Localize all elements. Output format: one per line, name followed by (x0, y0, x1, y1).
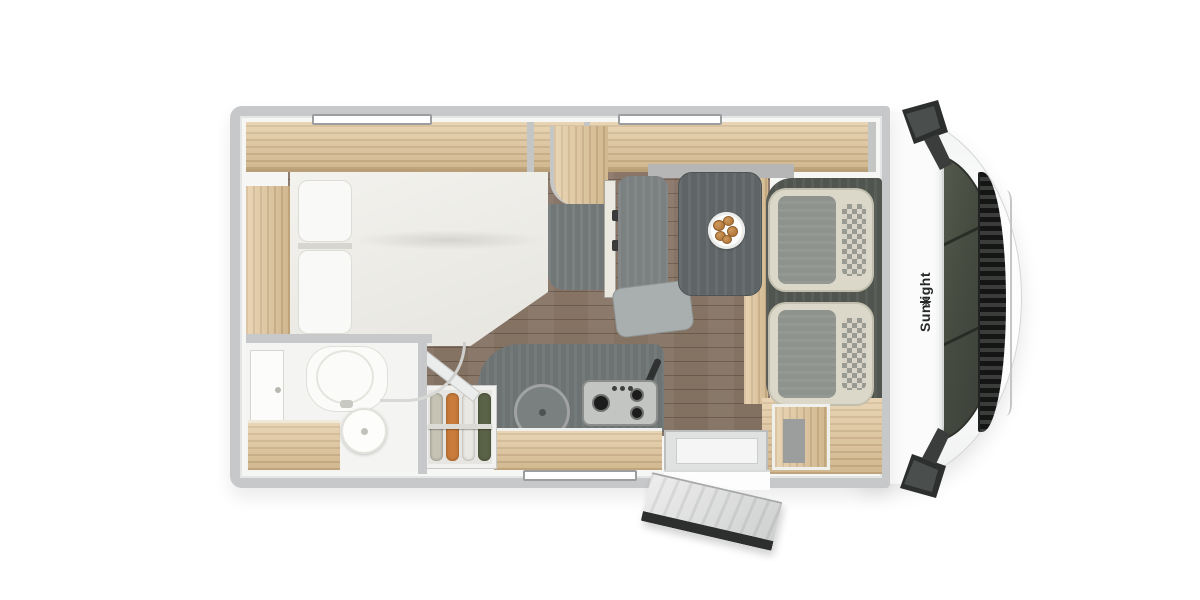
cab-seat-driver (768, 302, 874, 406)
entry-step (676, 438, 758, 464)
bathroom-cabinet-door (250, 350, 284, 428)
seat-cushion (778, 310, 836, 398)
seat-headrest-checkered (842, 318, 866, 390)
gas-hob (582, 380, 658, 426)
cab-seat-passenger (768, 188, 874, 292)
hanging-rail (428, 424, 492, 429)
cabinet-panel (783, 419, 805, 463)
motorhome-floorplan: Sunlight ✳ (0, 0, 1200, 600)
tv (604, 180, 616, 298)
toilet-seat (316, 350, 374, 404)
hob-knob-icon (620, 386, 625, 391)
seat-headrest-checkered (842, 204, 866, 276)
window-dinette (618, 114, 722, 125)
bathroom-vanity (248, 420, 340, 470)
burner-icon (592, 394, 610, 412)
side-mirror-top-icon (890, 98, 962, 178)
door-handle-icon (275, 387, 281, 393)
pillow (298, 250, 352, 334)
side-mirror-bottom-icon (886, 420, 962, 502)
entry-side-cabinet (772, 404, 830, 470)
brand-wordmark: Sunlight ✳ (904, 234, 946, 370)
sunlight-logo-icon: ✳ (918, 292, 933, 308)
fridge-tall-unit (548, 204, 606, 290)
pillow (298, 180, 352, 242)
dinette-bench-backrest (618, 176, 668, 298)
pastry (722, 235, 732, 244)
foot-cupboard (550, 126, 608, 206)
seat-cushion (778, 196, 836, 284)
duvet-fold (352, 230, 544, 250)
rear-wardrobe (246, 186, 292, 340)
plate-of-pastries (708, 212, 745, 249)
toilet-flush-icon (340, 400, 353, 408)
kitchen-counter-front (494, 428, 662, 470)
hob-knob-icon (612, 386, 617, 391)
clothes-wardrobe (424, 386, 496, 468)
hob-knob-icon (628, 386, 633, 391)
basin-drain-icon (361, 428, 368, 435)
sink-drain-icon (539, 409, 546, 416)
entry-step-well (664, 430, 768, 472)
locker-divider (527, 122, 534, 172)
pillow-shelf (298, 243, 352, 249)
pastry (723, 216, 734, 226)
window-kitchen (523, 470, 637, 481)
window-bedroom (312, 114, 432, 125)
front-bumper-trim (1006, 190, 1012, 416)
locker-end-panel (868, 122, 876, 172)
burner-icon (630, 406, 644, 420)
